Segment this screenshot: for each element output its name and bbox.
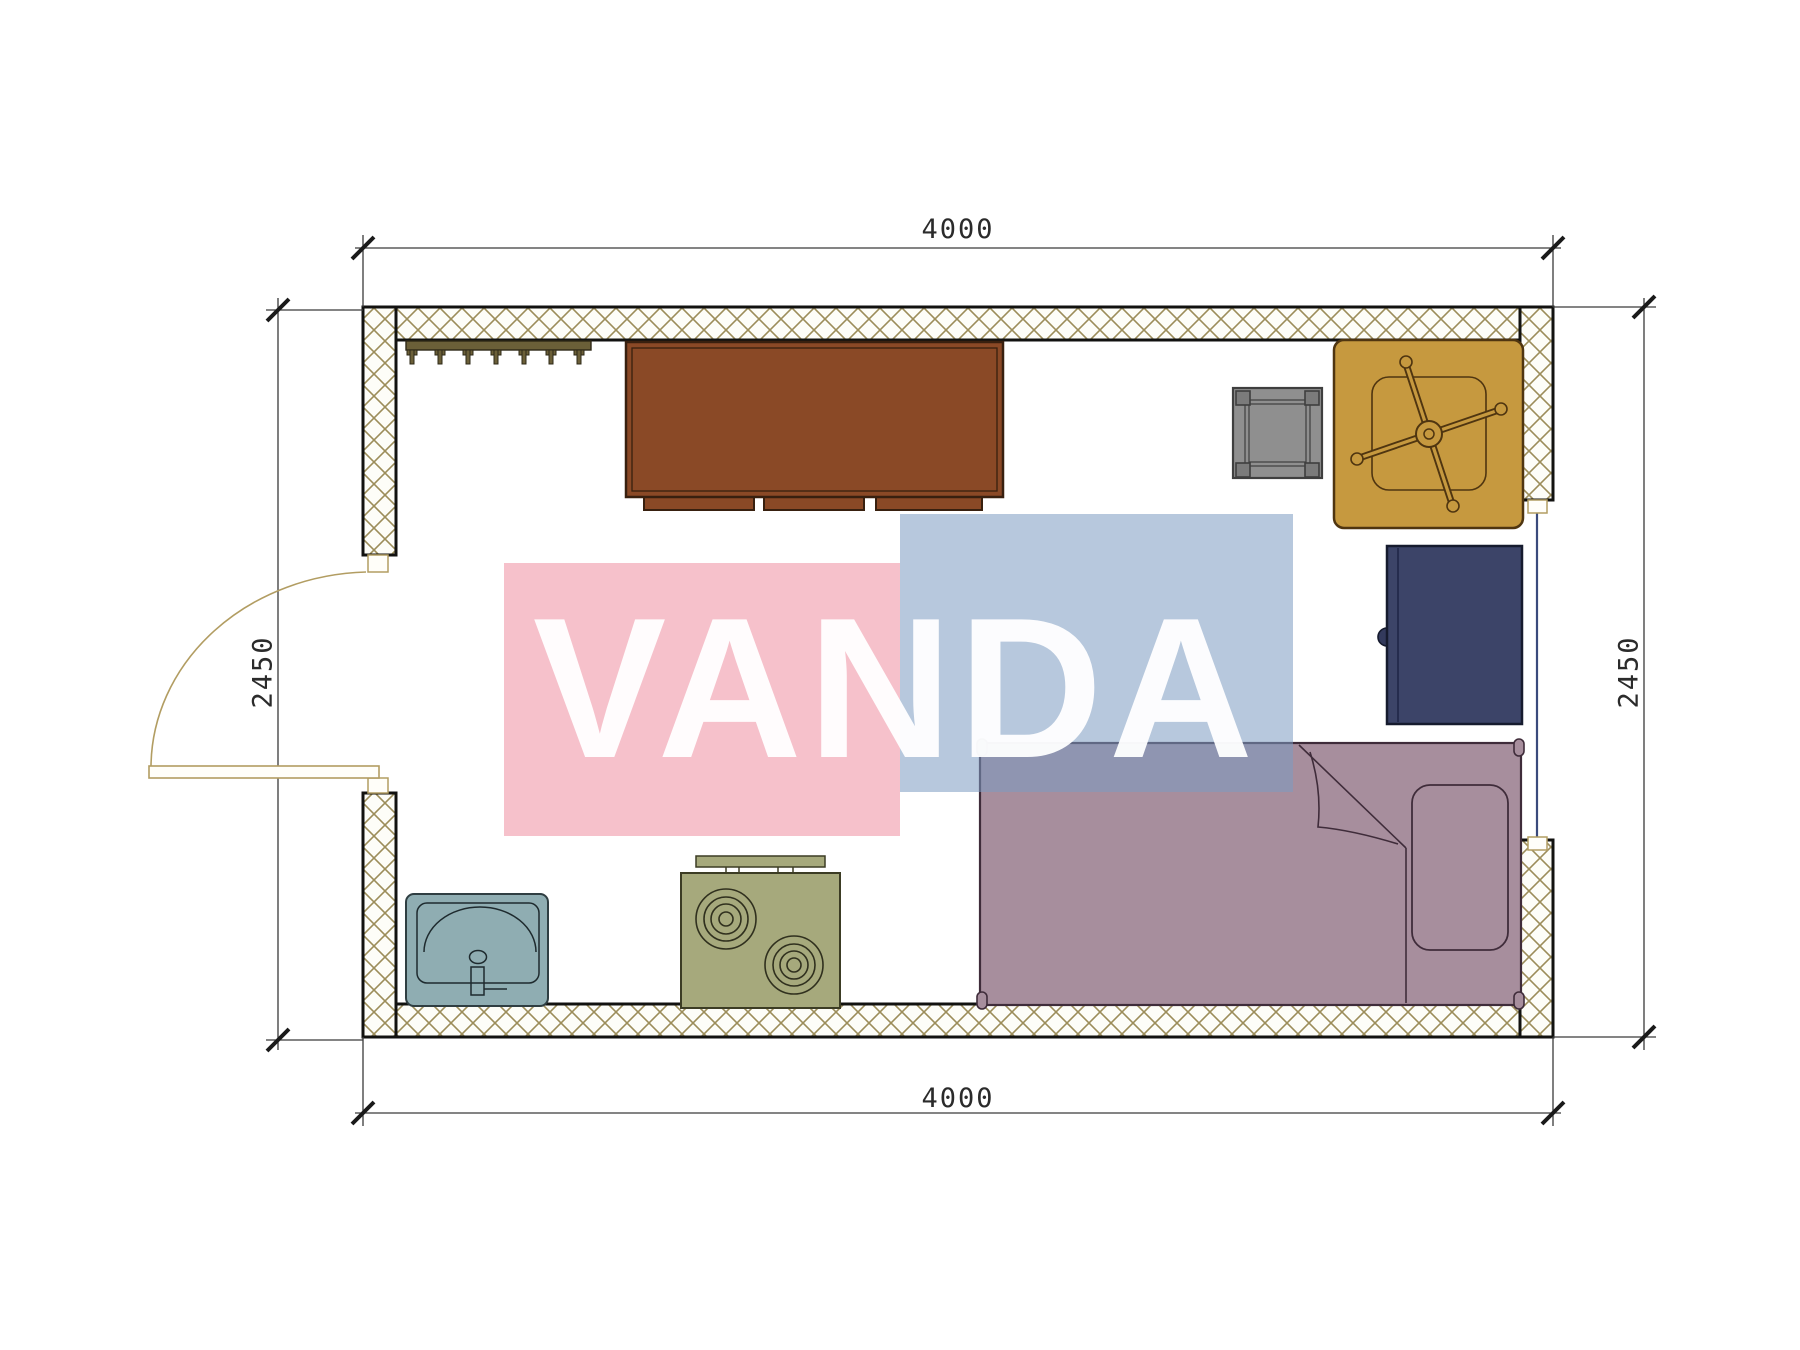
stool-leg xyxy=(1236,391,1250,405)
desk-top xyxy=(626,342,1003,497)
coat-rack xyxy=(406,341,591,364)
chair-wheel xyxy=(1495,403,1507,415)
stool xyxy=(1233,388,1322,478)
desk-foot xyxy=(876,497,982,510)
window-sill-bottom xyxy=(1528,837,1547,850)
office-chair xyxy=(1334,340,1523,528)
sink xyxy=(406,894,548,1006)
bed-post xyxy=(1514,992,1524,1009)
chair-wheel xyxy=(1447,500,1459,512)
chair-wheel xyxy=(1400,356,1412,368)
dimension-bottom: 4000 xyxy=(921,1083,994,1114)
stool-leg xyxy=(1236,463,1250,477)
dimension-right: 2450 xyxy=(1614,635,1645,708)
floor-plan-canvas: 4000 4000 2450 2450 VANDA xyxy=(0,0,1800,1350)
chair-wheel xyxy=(1351,453,1363,465)
bed-post xyxy=(1514,739,1524,756)
window-sill-top xyxy=(1528,500,1547,513)
desk-foot xyxy=(644,497,754,510)
cabinet xyxy=(1378,546,1522,724)
coat-rack-hooks xyxy=(407,350,584,364)
cabinet-body xyxy=(1387,546,1522,724)
wall-left-lower xyxy=(363,793,396,1037)
stove-control-panel xyxy=(696,856,825,867)
watermark-text: VANDA xyxy=(533,589,1259,789)
door-frame-top xyxy=(368,555,388,572)
door-frame-bottom xyxy=(368,778,388,793)
wall-left-upper xyxy=(363,307,396,555)
door-leaf xyxy=(149,766,379,778)
wall-right-upper xyxy=(1520,307,1553,500)
stool-leg xyxy=(1305,463,1319,477)
wall-top xyxy=(363,307,1553,340)
desk-foot xyxy=(764,497,864,510)
wall-right-lower xyxy=(1520,840,1553,1037)
bed-post xyxy=(977,992,987,1009)
dimension-left: 2450 xyxy=(248,635,279,708)
wall-bottom xyxy=(363,1004,1553,1037)
dimension-top: 4000 xyxy=(921,214,994,245)
stove xyxy=(681,856,840,1008)
window xyxy=(1528,500,1547,850)
chair-base-hub xyxy=(1416,421,1442,447)
stool-leg xyxy=(1305,391,1319,405)
desk xyxy=(626,342,1003,510)
